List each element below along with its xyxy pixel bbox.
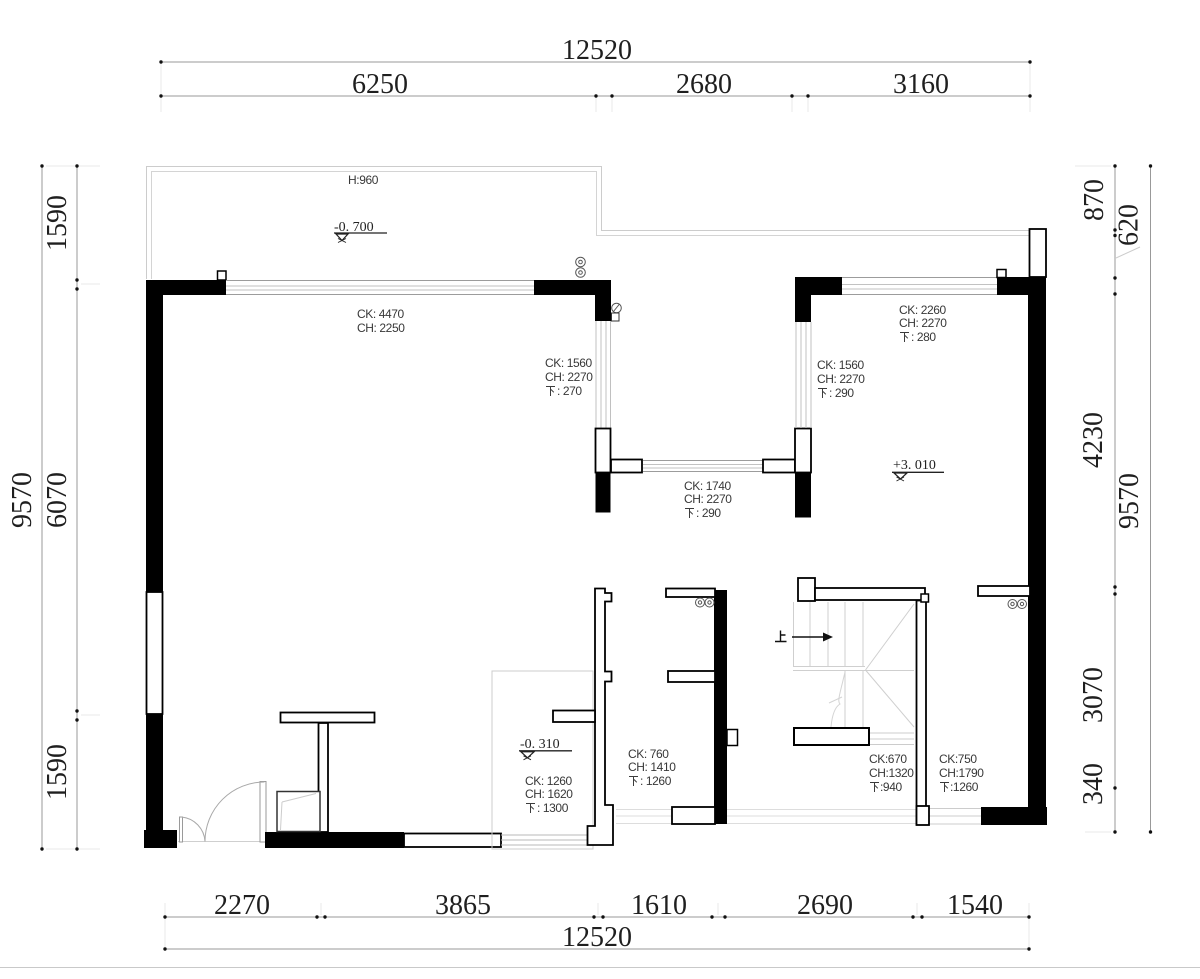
svg-text:CK:750: CK:750 <box>939 752 977 766</box>
svg-text:CK: 1260: CK: 1260 <box>525 774 573 788</box>
svg-text:2270: 2270 <box>214 890 270 921</box>
svg-text:H:960: H:960 <box>348 173 379 187</box>
svg-text:4230: 4230 <box>1078 412 1109 468</box>
svg-text:9570: 9570 <box>7 472 38 528</box>
svg-text:12520: 12520 <box>562 922 632 953</box>
svg-text:CK: 2260: CK: 2260 <box>899 303 947 317</box>
svg-text:+3. 010: +3. 010 <box>893 458 936 473</box>
svg-text:340: 340 <box>1078 763 1109 805</box>
svg-text:CH: 1620: CH: 1620 <box>525 787 573 801</box>
svg-text:: 280: : 280 <box>911 330 936 344</box>
svg-text:3070: 3070 <box>1078 667 1109 723</box>
svg-text:-0. 310: -0. 310 <box>520 737 560 752</box>
svg-text:CK: 1740: CK: 1740 <box>684 479 732 493</box>
svg-text:CH: 2250: CH: 2250 <box>357 321 405 335</box>
svg-text:CK: 1560: CK: 1560 <box>545 356 593 370</box>
svg-text:CH: 2270: CH: 2270 <box>545 370 593 384</box>
svg-text:2680: 2680 <box>676 69 732 100</box>
svg-text:CH:1790: CH:1790 <box>939 766 984 780</box>
svg-text:: 270: : 270 <box>557 384 582 398</box>
svg-text:CH: 2270: CH: 2270 <box>684 492 732 506</box>
svg-text:CK: 1560: CK: 1560 <box>817 358 865 372</box>
svg-text:CK:670: CK:670 <box>869 752 907 766</box>
svg-text:: 290: : 290 <box>696 506 721 520</box>
svg-text:1590: 1590 <box>42 195 73 251</box>
svg-text::1260: :1260 <box>950 780 979 794</box>
svg-text:3160: 3160 <box>893 69 949 100</box>
svg-text:6070: 6070 <box>42 472 73 528</box>
svg-text:6250: 6250 <box>352 69 408 100</box>
svg-text:9570: 9570 <box>1114 473 1145 529</box>
svg-text:620: 620 <box>1114 204 1145 246</box>
svg-text:CH: 2270: CH: 2270 <box>899 316 947 330</box>
svg-text:: 1300: : 1300 <box>537 801 569 815</box>
svg-text:1590: 1590 <box>42 744 73 800</box>
svg-text:CK: 4470: CK: 4470 <box>357 307 405 321</box>
svg-text:CK: 760: CK: 760 <box>628 747 669 761</box>
svg-text:870: 870 <box>1079 179 1110 221</box>
svg-text:: 1260: : 1260 <box>640 774 672 788</box>
svg-text:1540: 1540 <box>947 890 1003 921</box>
svg-text:CH: 2270: CH: 2270 <box>817 372 865 386</box>
svg-text:3865: 3865 <box>435 890 491 921</box>
svg-text:12520: 12520 <box>562 35 632 66</box>
svg-text:CH:1320: CH:1320 <box>869 766 914 780</box>
svg-text:: 290: : 290 <box>829 386 854 400</box>
svg-text::940: :940 <box>880 780 902 794</box>
svg-text:CH: 1410: CH: 1410 <box>628 760 676 774</box>
svg-text:1610: 1610 <box>631 890 687 921</box>
svg-text:2690: 2690 <box>797 890 853 921</box>
